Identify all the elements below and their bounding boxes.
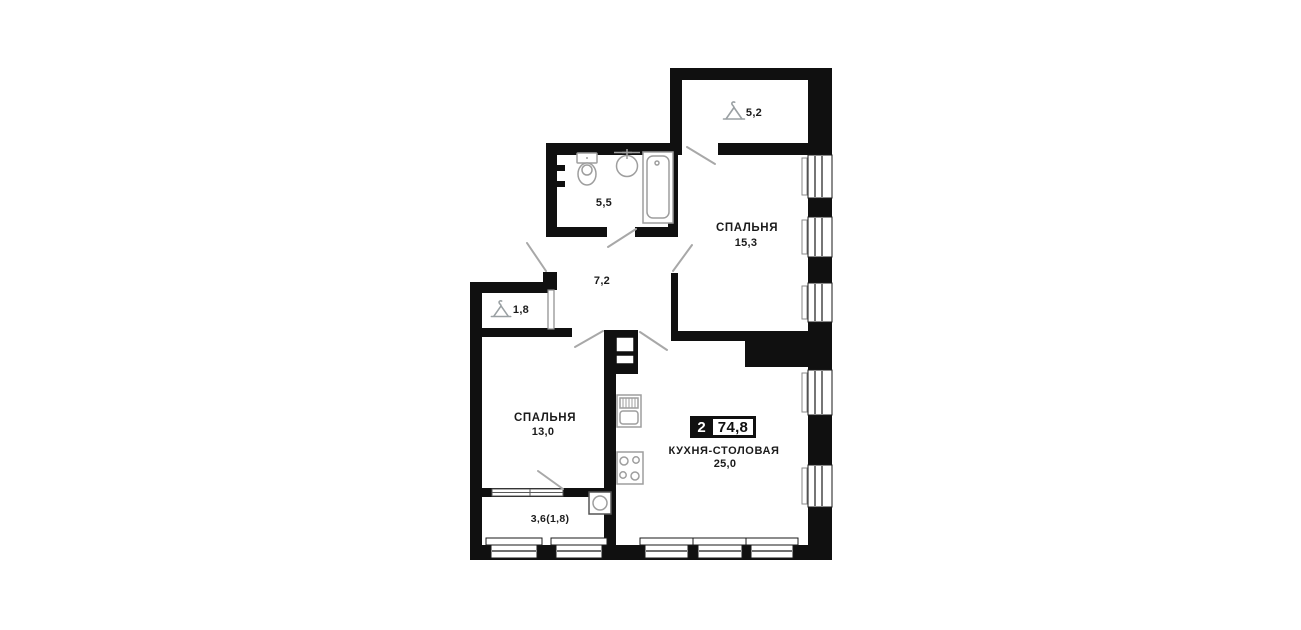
vent-shaft-cells xyxy=(616,337,634,364)
window xyxy=(486,538,542,558)
wall-entrance-block xyxy=(543,272,557,290)
window xyxy=(802,155,832,198)
hanger-icon xyxy=(724,102,745,119)
floor-plan: СПАЛЬНЯ 15,3 СПАЛЬНЯ 13,0 КУХНЯ-СТОЛОВАЯ… xyxy=(0,0,1301,630)
wall-bedroom-large-bottom xyxy=(671,331,745,341)
washing-machine-icon xyxy=(589,492,611,514)
loggia-window xyxy=(492,489,563,496)
sink-icon xyxy=(614,149,640,177)
window xyxy=(693,538,747,558)
window xyxy=(802,217,832,257)
door-swing-bedroom-large xyxy=(673,245,692,271)
bedroom-small-area: 13,0 xyxy=(532,426,555,438)
kitchen-area: 25,0 xyxy=(714,458,737,470)
wall-wardrobe-top-bottom xyxy=(718,143,812,155)
loggia-area: 3,6(1,8) xyxy=(531,513,570,525)
wall-bedroom-large-left xyxy=(671,273,678,331)
door-swing-bathroom xyxy=(608,229,636,247)
toilet-icon xyxy=(577,153,597,185)
window xyxy=(802,283,832,322)
door-swing-entrance xyxy=(527,243,546,271)
window xyxy=(640,538,693,558)
window xyxy=(802,370,832,415)
door-swing-kitchen xyxy=(640,332,667,350)
entrance-door-leaf xyxy=(548,290,554,329)
window xyxy=(551,538,607,558)
window xyxy=(746,538,798,558)
bedroom-small-name: СПАЛЬНЯ xyxy=(514,412,576,424)
wall-bedroom-small-top xyxy=(470,328,572,337)
wardrobe-side-area: 1,8 xyxy=(513,304,529,316)
bathroom-area: 5,5 xyxy=(596,197,612,209)
apartment-badge: 2 74,8 xyxy=(690,416,756,438)
bedroom-large-area: 15,3 xyxy=(735,237,758,249)
window xyxy=(802,465,832,507)
door-swing-wardrobe-top xyxy=(687,147,715,164)
stove-icon xyxy=(617,452,643,484)
hallway-area: 7,2 xyxy=(594,275,610,287)
floor-plan-drawing xyxy=(0,0,1301,630)
wall-left xyxy=(470,282,482,560)
kitchen-name: КУХНЯ-СТОЛОВАЯ xyxy=(669,445,780,457)
bedroom-large-name: СПАЛЬНЯ xyxy=(716,222,778,234)
bathtub-icon xyxy=(643,152,673,223)
wall-wardrobe-top-left xyxy=(670,68,682,155)
wall-bedroom-large-bottom-thick xyxy=(745,331,812,367)
kitchen-sink-icon xyxy=(617,395,641,427)
door-swing-bedroom-small xyxy=(575,331,603,347)
wall-bathroom-left xyxy=(546,143,557,237)
wall-bathroom-bottom-left xyxy=(546,227,607,237)
badge-room-count: 2 xyxy=(690,416,713,438)
wardrobe-top-area: 5,2 xyxy=(746,107,762,119)
hanger-icon xyxy=(491,301,510,317)
wall-top xyxy=(670,68,832,80)
wall-wardrobe-side-top xyxy=(470,282,552,293)
door-swing-loggia xyxy=(538,471,563,489)
badge-total-area: 74,8 xyxy=(713,416,756,438)
